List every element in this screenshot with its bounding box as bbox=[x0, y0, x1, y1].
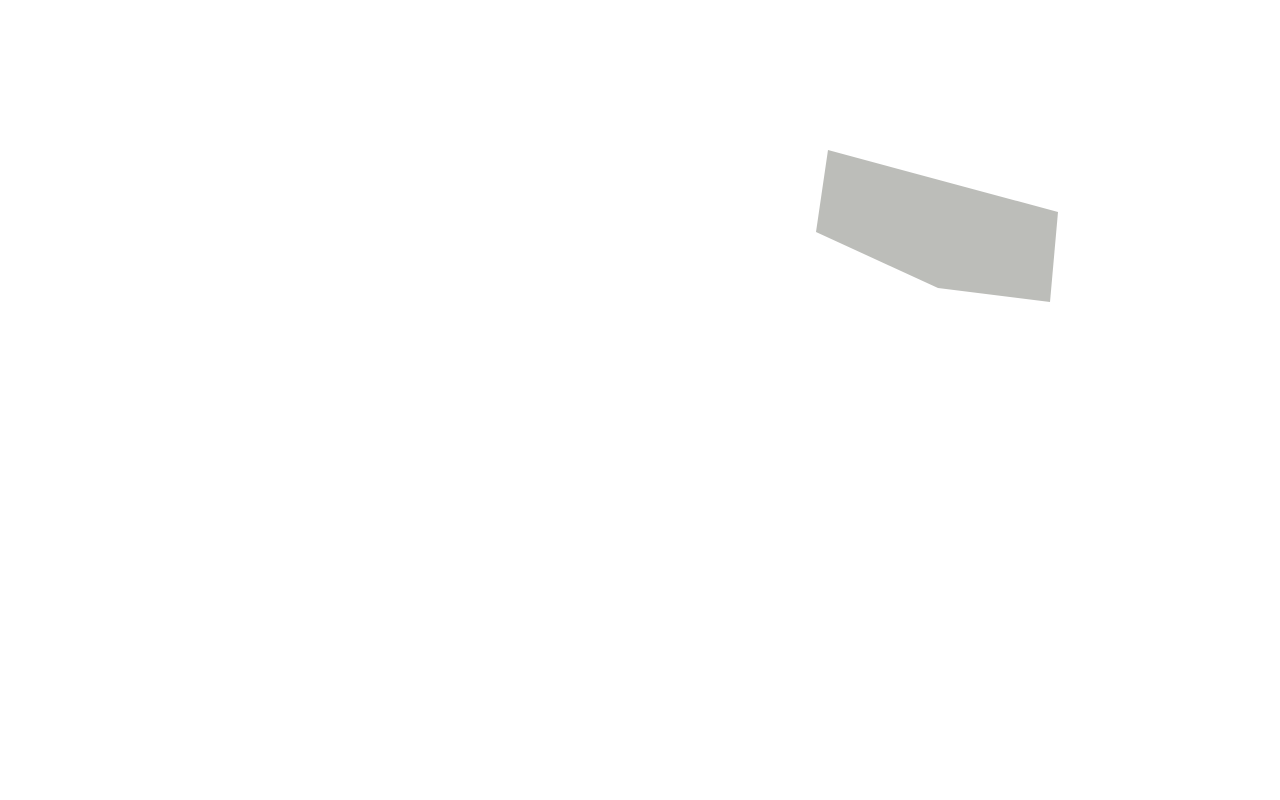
patio-gravel-floor bbox=[816, 150, 1058, 302]
floor-plan-3d-render bbox=[0, 0, 1280, 800]
floor-plan-stage bbox=[0, 0, 1280, 800]
